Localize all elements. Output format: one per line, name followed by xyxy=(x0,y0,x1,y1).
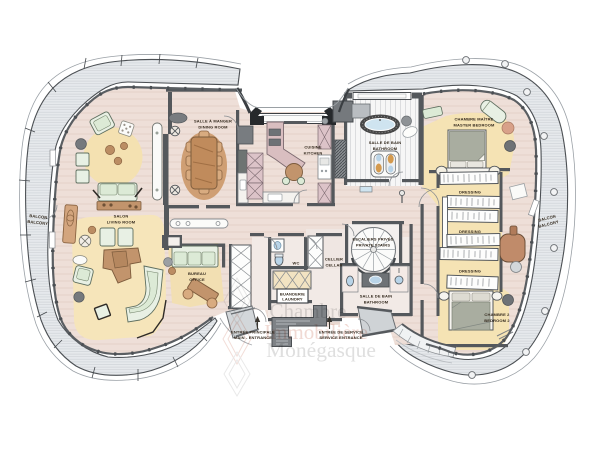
svg-text:BATHROOM: BATHROOM xyxy=(364,300,389,305)
svg-text:LIVING ROOM: LIVING ROOM xyxy=(107,220,136,225)
svg-text:SALLE DE BAIN: SALLE DE BAIN xyxy=(369,140,402,145)
svg-text:SALON: SALON xyxy=(114,214,129,219)
svg-text:KITCHEN: KITCHEN xyxy=(304,151,323,156)
svg-text:WC: WC xyxy=(293,261,300,266)
svg-text:Monégasque: Monégasque xyxy=(266,338,376,362)
svg-text:SALLE DE BAIN: SALLE DE BAIN xyxy=(360,294,393,299)
svg-text:BATHROOM: BATHROOM xyxy=(373,146,398,151)
svg-text:DRESSING: DRESSING xyxy=(459,229,481,234)
svg-text:PRIVATE STAIRS: PRIVATE STAIRS xyxy=(356,243,391,248)
svg-text:DINING ROOM: DINING ROOM xyxy=(198,125,228,130)
svg-text:DRESSING: DRESSING xyxy=(459,190,481,195)
svg-text:CELLIER: CELLIER xyxy=(325,257,343,262)
svg-text:CUISINE: CUISINE xyxy=(304,145,321,150)
svg-text:CHAMBRE MAÎTRE: CHAMBRE MAÎTRE xyxy=(455,117,494,122)
svg-text:MASTER BEDROOM: MASTER BEDROOM xyxy=(454,123,496,128)
svg-text:CHAMBRE 2: CHAMBRE 2 xyxy=(484,312,510,317)
svg-text:CELLAR: CELLAR xyxy=(325,263,342,268)
svg-text:BEDROOM 2: BEDROOM 2 xyxy=(484,318,510,323)
svg-text:SALLE À MANGER: SALLE À MANGER xyxy=(194,119,232,124)
svg-text:ESCALIERS PRIVÉS: ESCALIERS PRIVÉS xyxy=(352,237,393,242)
svg-text:OFFICE: OFFICE xyxy=(189,277,205,282)
svg-text:DRESSING: DRESSING xyxy=(459,269,481,274)
svg-text:BUREAU: BUREAU xyxy=(188,271,206,276)
